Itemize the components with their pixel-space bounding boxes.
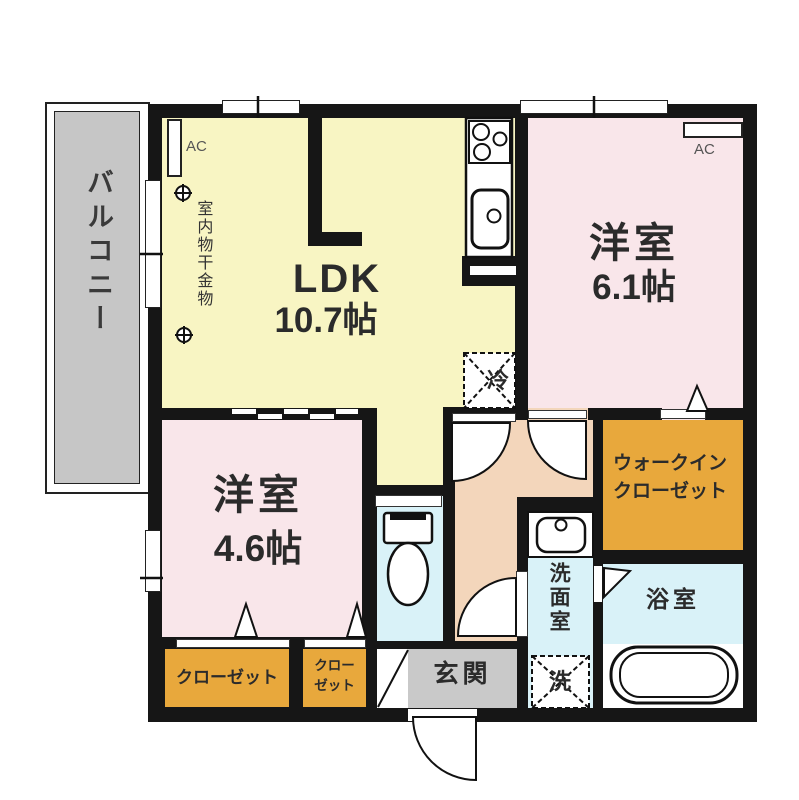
washing-machine-label: 洗: [549, 669, 571, 694]
ac-label-ldk: AC: [186, 138, 207, 155]
door-bedroom1: [528, 410, 587, 419]
bedroom1-name: 洋室: [575, 220, 693, 267]
door-wic: [660, 409, 706, 419]
ac-unit-ldk: [167, 119, 182, 177]
door-bathroom-gap: [594, 566, 602, 602]
window-top-bedroom1: [520, 100, 668, 114]
closet-narrow-line2: ゼット: [314, 678, 355, 693]
ldk-name: LDK: [272, 256, 402, 302]
entrance-label: 玄関: [415, 660, 510, 689]
closet-wide-label: クローゼット: [165, 668, 289, 688]
counter-slit: [470, 266, 516, 275]
door-washroom: [516, 571, 528, 637]
closet-narrow-label: クロー ゼット: [302, 656, 367, 697]
bathtub-strip: [603, 644, 743, 708]
bathroom-label: 浴室: [633, 586, 713, 612]
door-ldk-hall: [452, 413, 516, 422]
wic-label-line2: クローゼット: [613, 481, 727, 502]
window-bedroom2: [145, 530, 161, 592]
floor-plan: バルコニー AC AC 室内物干金物 LDK 10.7帖 洋室 6.1帖 洋室 …: [0, 0, 799, 800]
door-arc-entrance: [413, 717, 476, 780]
wall-bedroom1-bottom-b: [705, 408, 743, 420]
bedroom2-name: 洋室: [198, 472, 318, 519]
closet-narrow-line1: クロー: [314, 658, 355, 673]
ac-label-bedroom1: AC: [694, 141, 715, 158]
ldk-l-wall-vertical: [308, 118, 322, 246]
window-balcony-door: [145, 180, 161, 308]
wic-label: ウォークイン クローゼット: [597, 450, 743, 505]
bedroom2-size: 4.6帖: [192, 528, 324, 571]
wall-bedroom1-bottom-a: [588, 408, 662, 420]
door-closet-wide: [176, 639, 290, 648]
wall-washroom-top: [517, 497, 595, 511]
balcony-label: バルコニー: [82, 168, 113, 338]
door-entrance-gap: [408, 709, 477, 721]
door-toilet: [375, 495, 442, 507]
wall-right: [743, 104, 757, 722]
wall-wic-bottom: [593, 550, 743, 564]
wall-ldk-bedroom2: [162, 408, 377, 420]
indoor-drying-label: 室内物干金物: [193, 200, 211, 308]
door-closet-narrow: [304, 639, 366, 648]
washroom-label: 洗面室: [546, 562, 570, 634]
wall-entrance-top: [377, 641, 517, 649]
ac-unit-bedroom1: [683, 122, 743, 138]
ldk-l-wall-foot: [308, 232, 362, 246]
window-top-ldk: [222, 100, 300, 114]
refrigerator-label: 冷: [487, 368, 509, 393]
bedroom1-size: 6.1帖: [570, 268, 698, 308]
wic-label-line1: ウォークイン: [613, 453, 727, 474]
ldk-size: 10.7帖: [246, 301, 406, 341]
wall-washroom-left-b: [517, 636, 528, 710]
wall-finger-right: [443, 407, 455, 648]
